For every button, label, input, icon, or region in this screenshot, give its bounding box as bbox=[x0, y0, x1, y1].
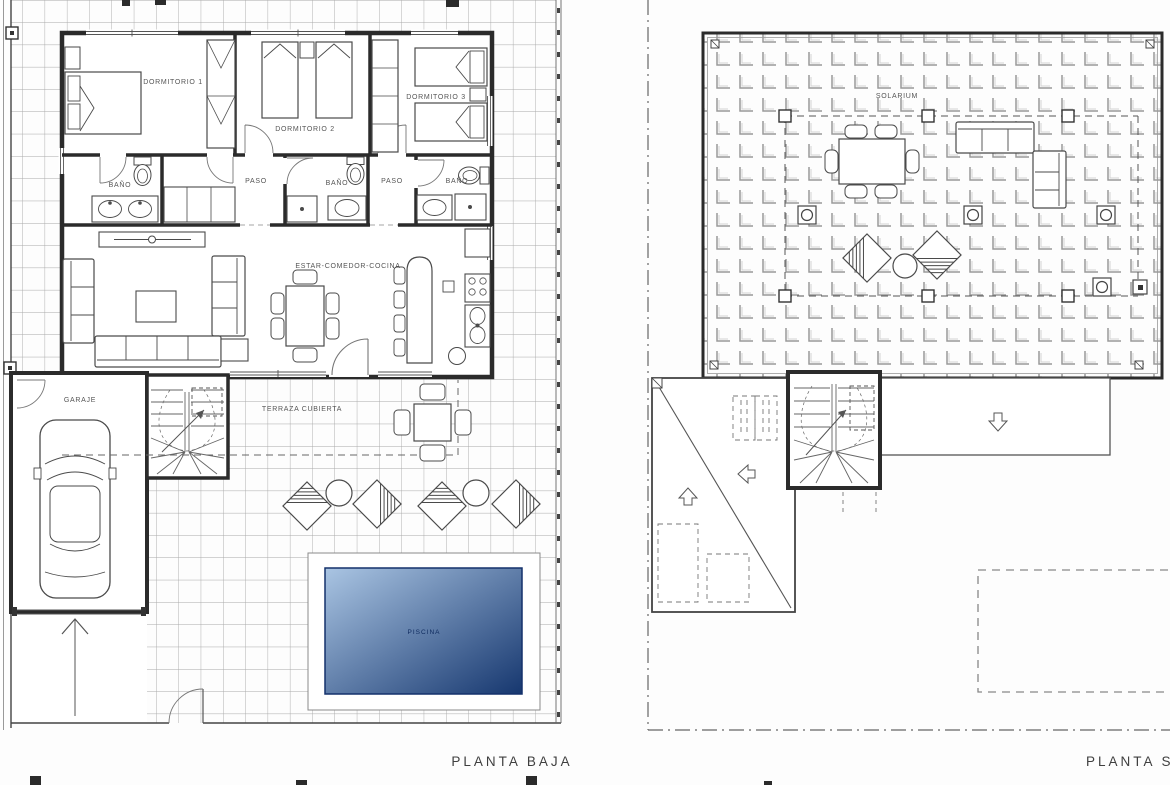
round-table bbox=[326, 480, 352, 506]
tv-sideboard bbox=[99, 232, 205, 247]
round-table bbox=[893, 254, 917, 278]
twin-bed bbox=[415, 103, 487, 141]
solarium-plan: SOLARIUM bbox=[648, 0, 1170, 769]
sofa bbox=[63, 259, 94, 343]
floor-plan-drawing: DORMITORIO 1 DORMITORIO 2 bbox=[0, 0, 1170, 785]
sink bbox=[328, 196, 366, 220]
small-table bbox=[449, 348, 466, 365]
hall-closet bbox=[164, 187, 235, 222]
sink bbox=[417, 195, 452, 220]
pool-label: PISCINA bbox=[407, 629, 440, 636]
solarium-label: SOLARIUM bbox=[876, 93, 918, 100]
twin-bed bbox=[262, 42, 298, 118]
nightstand bbox=[65, 47, 80, 69]
floor-plan-sheet: DORMITORIO 1 DORMITORIO 2 bbox=[0, 0, 1170, 785]
kitchen-peninsula bbox=[407, 257, 432, 363]
toilet bbox=[134, 157, 151, 186]
driveway bbox=[11, 612, 147, 723]
wardrobe bbox=[207, 40, 235, 148]
bedroom-2-label: DORMITORIO 2 bbox=[275, 126, 335, 133]
bathroom-3-label: BAÑO bbox=[446, 176, 469, 185]
side-table bbox=[221, 339, 248, 361]
bedroom-3-label: DORMITORIO 3 bbox=[406, 94, 466, 101]
kitchen-sink bbox=[465, 305, 490, 347]
spiral-stairs bbox=[147, 375, 228, 478]
solarium-slab bbox=[703, 33, 1162, 378]
twin-bed bbox=[415, 48, 487, 86]
kitchen-cabinet bbox=[465, 229, 490, 257]
sofa bbox=[212, 256, 245, 336]
nightstand bbox=[300, 42, 314, 58]
hall-1-label: PASO bbox=[245, 178, 267, 185]
garage-label: GARAJE bbox=[64, 397, 96, 404]
round-table bbox=[463, 480, 489, 506]
sofa bbox=[956, 122, 1034, 153]
bathroom-1-label: BAÑO bbox=[109, 180, 132, 189]
stove bbox=[465, 274, 490, 302]
sofa bbox=[95, 336, 221, 367]
double-sink-vanity bbox=[92, 196, 158, 222]
solarium-floor-title: PLANTA SOLA bbox=[1086, 754, 1170, 769]
toilet bbox=[347, 157, 364, 185]
car bbox=[34, 420, 116, 598]
nightstand bbox=[470, 88, 486, 101]
coffee-table bbox=[136, 291, 176, 322]
terrace-roof-band bbox=[880, 378, 1110, 455]
garage-roof bbox=[652, 378, 795, 612]
pool: PISCINA bbox=[325, 568, 522, 694]
sofa bbox=[1033, 151, 1066, 208]
bedroom-1-label: DORMITORIO 1 bbox=[143, 79, 203, 86]
pool-outline-dashed bbox=[978, 570, 1170, 692]
bathroom-2-label: BAÑO bbox=[326, 178, 349, 187]
fence-right bbox=[556, 0, 561, 723]
double-bed bbox=[65, 72, 141, 134]
hall-2-label: PASO bbox=[381, 178, 403, 185]
spiral-stairs-upper bbox=[788, 372, 880, 516]
living-label: ESTAR-COMEDOR-COCINA bbox=[295, 263, 400, 270]
ground-floor-title: PLANTA BAJA bbox=[451, 754, 572, 769]
wardrobe bbox=[372, 40, 398, 152]
twin-bed bbox=[316, 42, 352, 118]
terrace-label: TERRAZA CUBIERTA bbox=[262, 406, 342, 413]
